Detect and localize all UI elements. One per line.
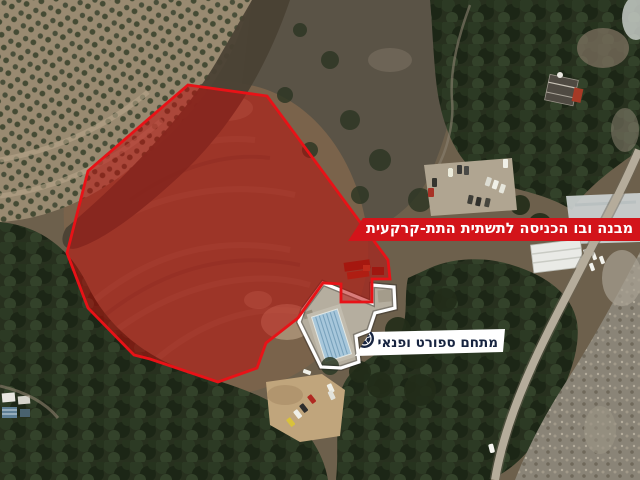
parking-lot bbox=[424, 158, 517, 216]
underground-entrance-banner: מבנה ובו הכניסה לתשתית התת-קרקעית bbox=[348, 218, 640, 241]
sports-complex-label: מתחם ספורט ופנאי bbox=[395, 330, 498, 356]
sports-complex-banner: מתחם ספורט ופנאי bbox=[355, 329, 505, 356]
annotated-satellite-image: מבנה ובו הכניסה לתשתית התת-קרקעית מתחם ס… bbox=[0, 0, 640, 480]
underground-entrance-label: מבנה ובו הכניסה לתשתית התת-קרקעית bbox=[366, 218, 633, 241]
